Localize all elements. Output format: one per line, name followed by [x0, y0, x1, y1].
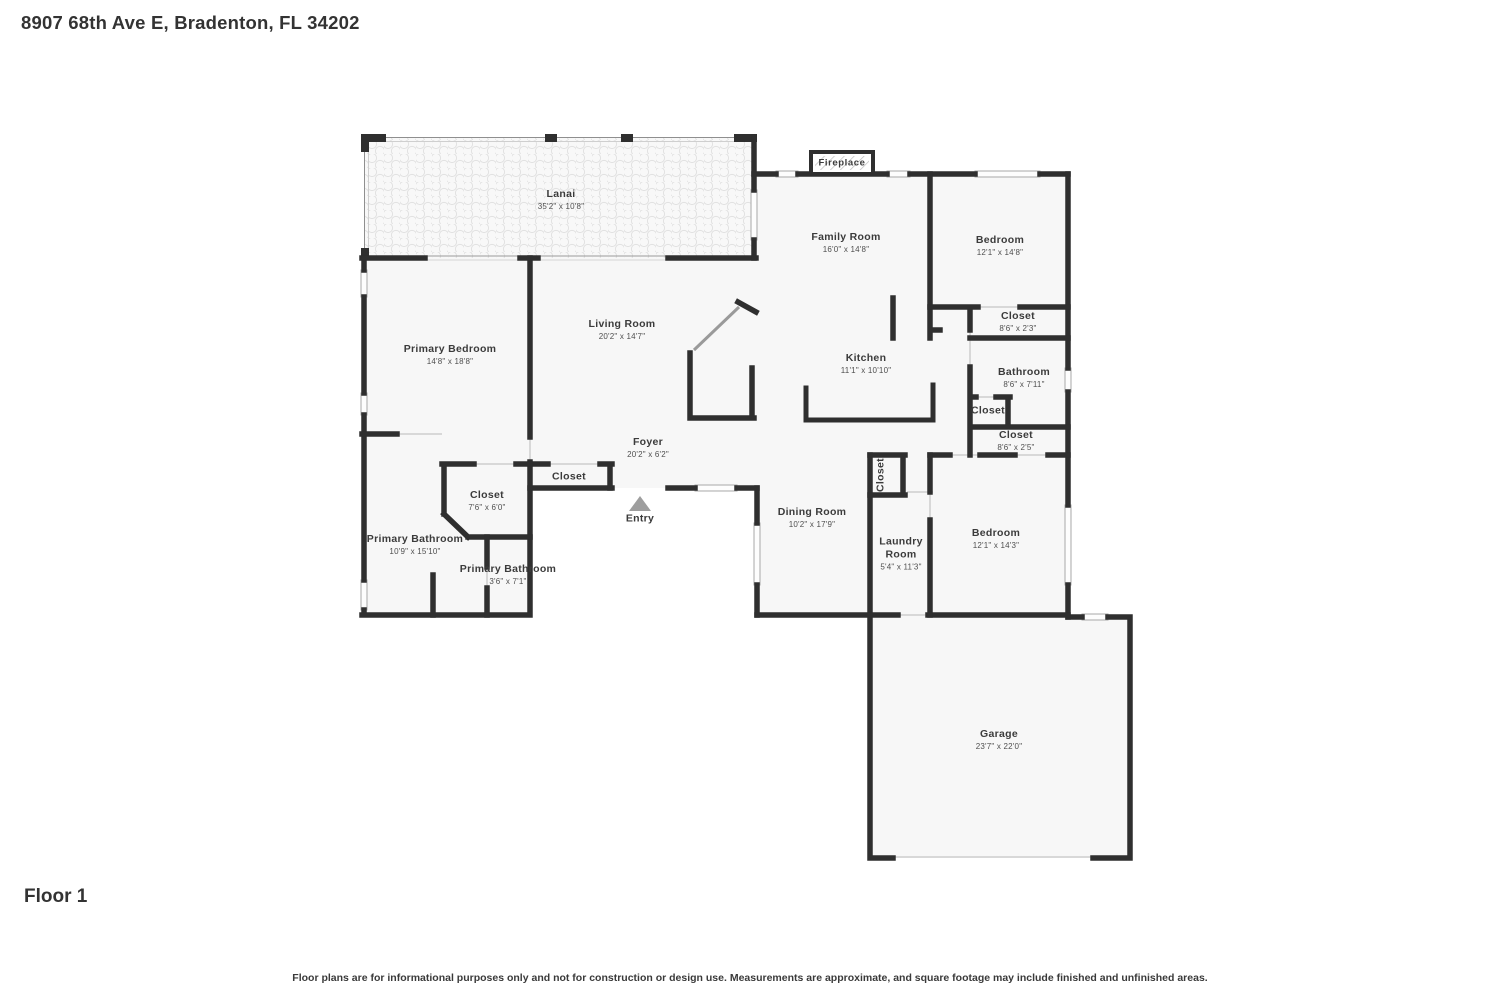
- disclaimer-text: Floor plans are for informational purpos…: [0, 972, 1500, 984]
- floor-plan-drawing: [0, 0, 1500, 1000]
- fireplace-hatch: [815, 156, 869, 170]
- lanai-screen-texture: [364, 137, 754, 258]
- floor-number-label: Floor 1: [24, 886, 87, 908]
- entry-arrow-icon: [629, 496, 651, 511]
- floor-plan-page: 8907 68th Ave E, Bradenton, FL 34202: [0, 0, 1500, 1000]
- floor-fill: [362, 137, 1130, 858]
